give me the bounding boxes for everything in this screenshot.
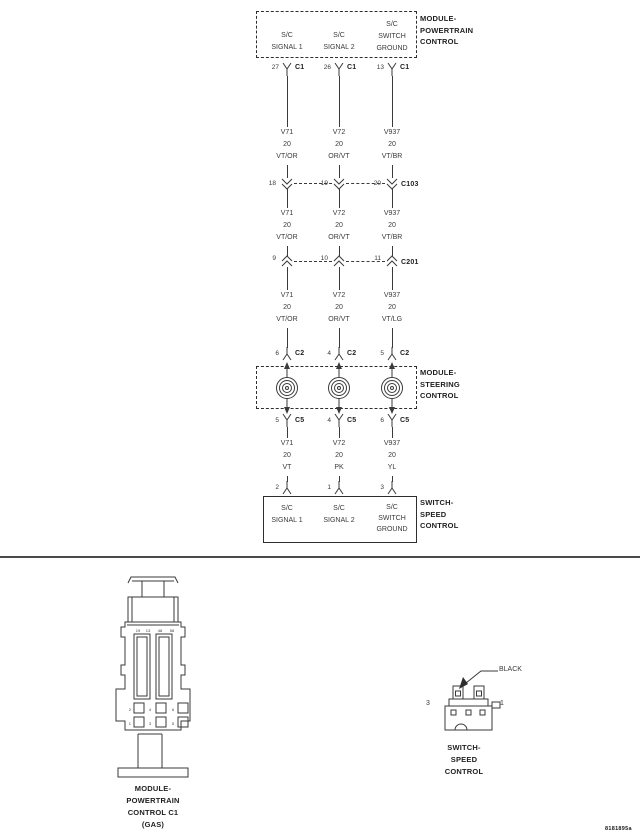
pin-number: 4 <box>317 417 331 425</box>
signal-line: S/C <box>314 30 364 42</box>
terminal-y-icon <box>333 62 345 76</box>
pin-number: 10 <box>314 255 328 263</box>
module-name-line: CONTROL <box>420 36 473 48</box>
wire-label: V71 20 VT/OR <box>262 290 312 326</box>
wire-color: VT/OR <box>262 232 312 244</box>
signal-line: SWITCH <box>367 513 417 524</box>
wire-gauge: 20 <box>367 450 417 462</box>
wire-gauge: 20 <box>314 220 364 232</box>
connector-label-c5: C5 <box>347 417 356 425</box>
wire-code: V72 <box>314 438 364 450</box>
pin-number: 3 <box>370 484 384 492</box>
wire-gauge: 20 <box>367 302 417 314</box>
wire-line <box>287 328 288 348</box>
wire-line <box>339 165 340 178</box>
wire-line <box>339 328 340 348</box>
connector-pin-right: 1 <box>500 700 504 708</box>
wire-gauge: 20 <box>262 302 312 314</box>
module-name-line: SPEED <box>420 509 458 521</box>
signal-line: GROUND <box>367 524 417 535</box>
connector-label-c5: C5 <box>400 417 409 425</box>
pcm-module-name: MODULE- POWERTRAIN CONTROL <box>420 13 473 48</box>
wire-gauge: 20 <box>262 220 312 232</box>
cavity-number: 4 <box>149 707 152 712</box>
clockspring-coil-icon <box>327 376 351 400</box>
pin-number: 19 <box>314 180 328 188</box>
wire-color: YL <box>367 462 417 474</box>
pcm-connector-caption: MODULE- POWERTRAIN CONTROL C1 (GAS) <box>113 783 193 831</box>
connector-label-c2: C2 <box>400 350 409 358</box>
signal-line: S/C <box>262 503 312 515</box>
wire-line <box>339 267 340 290</box>
cavity-range-number: 13 <box>146 628 151 633</box>
cavity-range-number: 19 <box>136 628 141 633</box>
switch-signal-2-label: S/C SIGNAL 2 <box>314 503 364 527</box>
wire-gauge: 20 <box>262 139 312 151</box>
wire-line <box>392 427 393 438</box>
module-name-line: MODULE- <box>420 13 473 25</box>
wire-gauge: 20 <box>262 450 312 462</box>
wire-color: VT/OR <box>262 151 312 163</box>
wire-line <box>392 76 393 127</box>
wire-code: V71 <box>262 438 312 450</box>
clockspring-coil-icon <box>275 376 299 400</box>
arrow-up-icon <box>335 361 343 377</box>
cavity-number: 1 <box>129 721 132 726</box>
module-name-line: POWERTRAIN <box>420 25 473 37</box>
signal-line: SIGNAL 2 <box>314 42 364 54</box>
pcm-signal-2-label: S/C SIGNAL 2 <box>314 30 364 54</box>
module-name-line: CONTROL <box>420 520 458 532</box>
wire-label: V937 20 YL <box>367 438 417 474</box>
pin-number: 5 <box>370 350 384 358</box>
wire-color: PK <box>314 462 364 474</box>
signal-line: SIGNAL 1 <box>262 42 312 54</box>
wire-line <box>287 427 288 438</box>
cavity-number: 2 <box>129 707 132 712</box>
terminal-y-icon <box>386 62 398 76</box>
connector-label-c103: C103 <box>401 181 419 189</box>
wire-label: V937 20 VT/LG <box>367 290 417 326</box>
wire-label: V937 20 VT/BR <box>367 208 417 244</box>
wire-line <box>392 328 393 348</box>
connector-label-c201: C201 <box>401 259 419 267</box>
caption-line: SWITCH- <box>424 742 504 754</box>
wire-code: V72 <box>314 290 364 302</box>
terminal-arrow-icon <box>281 481 293 495</box>
terminal-arrow-icon <box>333 481 345 495</box>
pin-number: 18 <box>262 180 276 188</box>
terminal-y-icon <box>281 62 293 76</box>
pin-number: 5 <box>265 417 279 425</box>
inline-connector-up-icon <box>333 255 345 267</box>
wire-line <box>287 189 288 208</box>
wire-line <box>339 427 340 438</box>
wire-color: VT/OR <box>262 314 312 326</box>
wire-line <box>339 76 340 127</box>
cavity-number: 6 <box>172 707 175 712</box>
wire-gauge: 20 <box>314 302 364 314</box>
connector-label-c5: C5 <box>295 417 304 425</box>
signal-line: SWITCH <box>367 31 417 43</box>
pcm-signal-1-label: S/C SIGNAL 1 <box>262 30 312 54</box>
pcm-switch-ground-label: S/C SWITCH GROUND <box>367 19 417 55</box>
section-divider <box>0 556 640 558</box>
wire-code: V72 <box>314 127 364 139</box>
connector-label-c1: C1 <box>295 64 304 72</box>
clockspring-coil-icon <box>380 376 404 400</box>
pin-number: 27 <box>265 64 279 72</box>
pin-number: 9 <box>262 255 276 263</box>
switch-ground-label: S/C SWITCH GROUND <box>367 502 417 535</box>
cavity-range-number: 48 <box>158 628 163 633</box>
connector-pin-left: 3 <box>426 700 430 708</box>
document-number: 8181895a <box>605 826 632 832</box>
wire-code: V937 <box>367 438 417 450</box>
terminal-arrow-icon <box>333 347 345 361</box>
signal-line: SIGNAL 1 <box>262 515 312 527</box>
wire-code: V937 <box>367 127 417 139</box>
wire-color: VT <box>262 462 312 474</box>
terminal-arrow-icon <box>281 347 293 361</box>
wiring-diagram-page: S/C SIGNAL 1 S/C SIGNAL 2 S/C SWITCH GRO… <box>0 0 640 838</box>
wire-code: V71 <box>262 127 312 139</box>
connector-label-c2: C2 <box>347 350 356 358</box>
wire-gauge: 20 <box>314 450 364 462</box>
wire-color: OR/VT <box>314 314 364 326</box>
wire-line <box>287 76 288 127</box>
wire-line <box>287 267 288 290</box>
caption-line: MODULE- <box>113 783 193 795</box>
signal-line: GROUND <box>367 43 417 55</box>
wire-label: V937 20 VT/BR <box>367 127 417 163</box>
pin-number: 26 <box>317 64 331 72</box>
pcm-connector-drawing: 19 13 48 58 2 4 6 1 3 5 <box>94 575 214 780</box>
wire-label: V71 20 VT/OR <box>262 127 312 163</box>
pin-number: 4 <box>317 350 331 358</box>
wire-color: VT/BR <box>367 151 417 163</box>
wire-code: V71 <box>262 290 312 302</box>
module-name-line: STEERING <box>420 379 460 391</box>
wire-color: VT/BR <box>367 232 417 244</box>
connector-label-c1: C1 <box>400 64 409 72</box>
arrow-up-icon <box>388 361 396 377</box>
wire-label: V71 20 VT <box>262 438 312 474</box>
wire-line <box>392 267 393 290</box>
wire-label: V71 20 VT/OR <box>262 208 312 244</box>
wire-gauge: 20 <box>314 139 364 151</box>
caption-line: SPEED <box>424 754 504 766</box>
pin-number: 2 <box>265 484 279 492</box>
cavity-range-number: 58 <box>170 628 175 633</box>
pin-number: 6 <box>265 350 279 358</box>
speed-connector-caption: SWITCH- SPEED CONTROL <box>424 742 504 778</box>
terminal-y-icon <box>281 413 293 427</box>
wire-gauge: 20 <box>367 220 417 232</box>
signal-line: S/C <box>314 503 364 515</box>
pin-number: 1 <box>317 484 331 492</box>
module-name-line: CONTROL <box>420 390 460 402</box>
wire-label: V72 20 OR/VT <box>314 208 364 244</box>
wire-code: V72 <box>314 208 364 220</box>
wire-code: V937 <box>367 290 417 302</box>
wire-line <box>339 189 340 208</box>
pin-number: 11 <box>367 255 381 263</box>
wire-gauge: 20 <box>367 139 417 151</box>
wire-color: VT/LG <box>367 314 417 326</box>
terminal-y-icon <box>386 413 398 427</box>
wire-label: V72 20 OR/VT <box>314 290 364 326</box>
terminal-arrow-icon <box>386 481 398 495</box>
wire-code: V937 <box>367 208 417 220</box>
steering-module-name: MODULE- STEERING CONTROL <box>420 367 460 402</box>
pin-number: 13 <box>370 64 384 72</box>
wire-color: OR/VT <box>314 151 364 163</box>
terminal-y-icon <box>333 413 345 427</box>
signal-line: SIGNAL 2 <box>314 515 364 527</box>
signal-line: S/C <box>367 502 417 513</box>
connector-label-c2: C2 <box>295 350 304 358</box>
wire-code: V71 <box>262 208 312 220</box>
wire-label: V72 20 OR/VT <box>314 127 364 163</box>
speed-switch-name: SWITCH- SPEED CONTROL <box>420 497 458 532</box>
caption-line: POWERTRAIN <box>113 795 193 807</box>
terminal-arrow-icon <box>386 347 398 361</box>
wire-color: OR/VT <box>314 232 364 244</box>
switch-signal-1-label: S/C SIGNAL 1 <box>262 503 312 527</box>
cavity-number: 5 <box>172 721 175 726</box>
inline-connector-up-icon <box>281 255 293 267</box>
caption-line: CONTROL <box>424 766 504 778</box>
module-name-line: SWITCH- <box>420 497 458 509</box>
wire-label: V72 20 PK <box>314 438 364 474</box>
caption-line: CONTROL C1 <box>113 807 193 819</box>
connector-label-c1: C1 <box>347 64 356 72</box>
cavity-number: 3 <box>149 721 152 726</box>
module-name-line: MODULE- <box>420 367 460 379</box>
arrow-up-icon <box>283 361 291 377</box>
wire-line <box>392 189 393 208</box>
signal-line: S/C <box>262 30 312 42</box>
connector-color-label: BLACK <box>499 666 522 674</box>
caption-line: (GAS) <box>113 819 193 831</box>
pin-number: 20 <box>367 180 381 188</box>
inline-connector-up-icon <box>386 255 398 267</box>
pin-number: 6 <box>370 417 384 425</box>
signal-line: S/C <box>367 19 417 31</box>
wire-line <box>392 165 393 178</box>
wire-line <box>287 165 288 178</box>
